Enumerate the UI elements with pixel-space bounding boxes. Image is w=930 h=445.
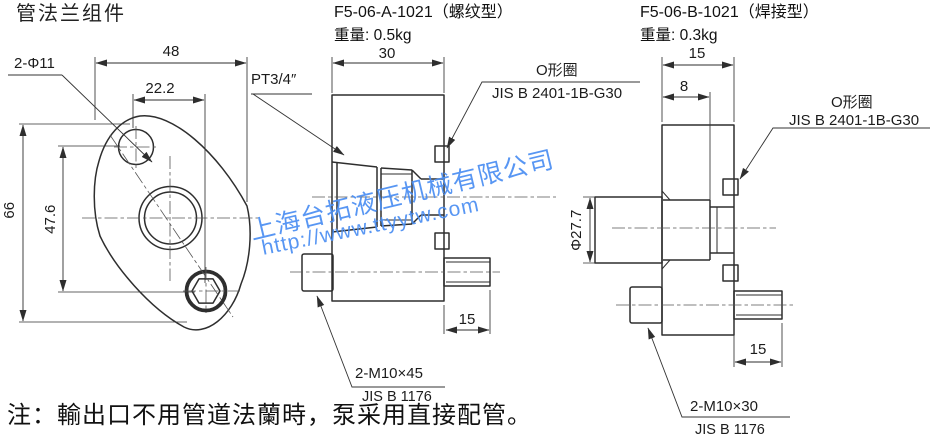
dim-flange-height: 66 (2, 192, 19, 228)
part-no-welded: F5-06-B-1021（焊接型） (640, 4, 819, 22)
flange-outline (94, 116, 250, 330)
bolt-label-welded: 2-M10×30 (690, 399, 758, 416)
dim-bolt-protrusion-welded: 15 (742, 342, 774, 359)
dim-bore-depth: 8 (676, 79, 692, 96)
part-no-threaded: F5-06-A-1021（螺纹型） (334, 4, 513, 22)
thread-size-label: PT3/4″ (251, 72, 296, 89)
dim-bolt-spacing-y: 47.6 (43, 197, 60, 241)
page-title: 管法兰组件 (16, 3, 126, 25)
dim-bolt-spacing-x: 22.2 (138, 81, 182, 98)
bolt-spec-welded: JIS B 1176 (695, 423, 765, 439)
bolt-label-threaded: 2-M10×45 (355, 366, 423, 383)
dim-pipe-od: Φ27.7 (569, 204, 586, 256)
center-port-outer (139, 187, 202, 250)
dim-bolt-holes: 2-Φ11 (14, 56, 55, 73)
drawing-page: 上海台拓液压机械有限公司 http://www.ttyytw.com 管法兰组件… (0, 0, 930, 445)
oring-spec-threaded: JIS B 2401-1B-G30 (492, 86, 622, 103)
footer-note: 注：輸出口不用管道法蘭時，泵采用直接配管。 (7, 403, 532, 429)
dim-depth-welded: 15 (681, 46, 713, 63)
dim-flange-width: 48 (155, 44, 187, 61)
drawing-canvas (0, 0, 930, 445)
oring-label-threaded: O形圈 (536, 63, 578, 80)
dim-depth-threaded: 30 (371, 46, 403, 63)
oring-spec-welded: JIS B 2401-1B-G30 (789, 113, 919, 130)
weight-threaded: 重量: 0.5kg (334, 27, 412, 44)
oring-label-welded: O形圈 (831, 95, 873, 112)
weight-welded: 重量: 0.3kg (640, 27, 718, 44)
dim-bolt-protrusion-threaded: 15 (451, 312, 483, 329)
